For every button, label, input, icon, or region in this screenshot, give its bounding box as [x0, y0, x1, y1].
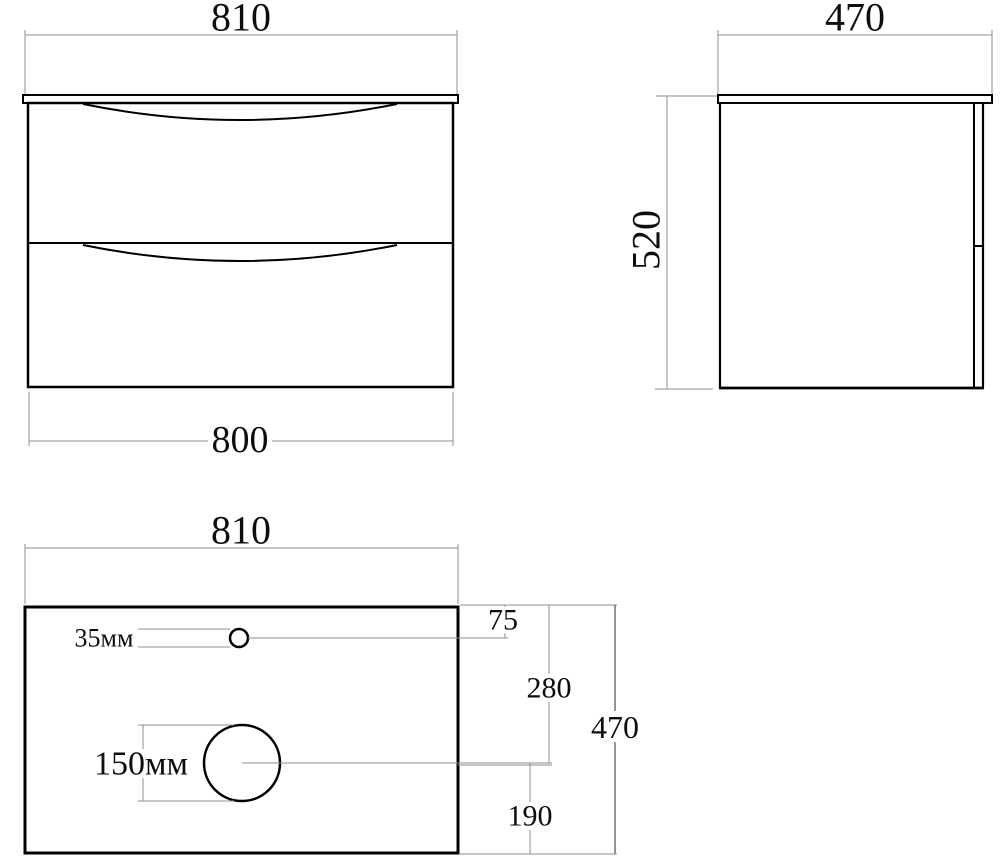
front-drawer2-handle-curve	[83, 245, 397, 261]
plan-faucet-label: 35мм	[75, 624, 134, 653]
technical-drawing: 810 800 470	[0, 0, 1000, 864]
front-dim-label-800: 800	[212, 419, 269, 461]
plan-drain-label: 150мм	[94, 746, 188, 783]
plan-dim-label-470: 470	[591, 709, 639, 745]
plan-dim-label-280: 280	[527, 672, 572, 705]
side-dim-label-520: 520	[624, 210, 669, 270]
plan-faucet-hole	[230, 629, 248, 647]
front-view: 810 800	[23, 0, 458, 461]
plan-dim-label-810: 810	[211, 508, 271, 553]
side-countertop	[718, 95, 992, 103]
plan-dim-label-190: 190	[508, 800, 553, 833]
front-dim-label-810: 810	[211, 0, 271, 40]
plan-dim-label-75: 75	[488, 604, 518, 637]
plan-view: 810 35мм 150мм 75 280	[25, 508, 640, 855]
side-view: 470 520	[624, 0, 993, 389]
front-cabinet-outline	[28, 103, 453, 387]
front-drawer1-handle-curve	[83, 104, 397, 120]
drawing-svg: 810 800 470	[0, 0, 1000, 864]
side-dim-label-470: 470	[825, 0, 885, 40]
